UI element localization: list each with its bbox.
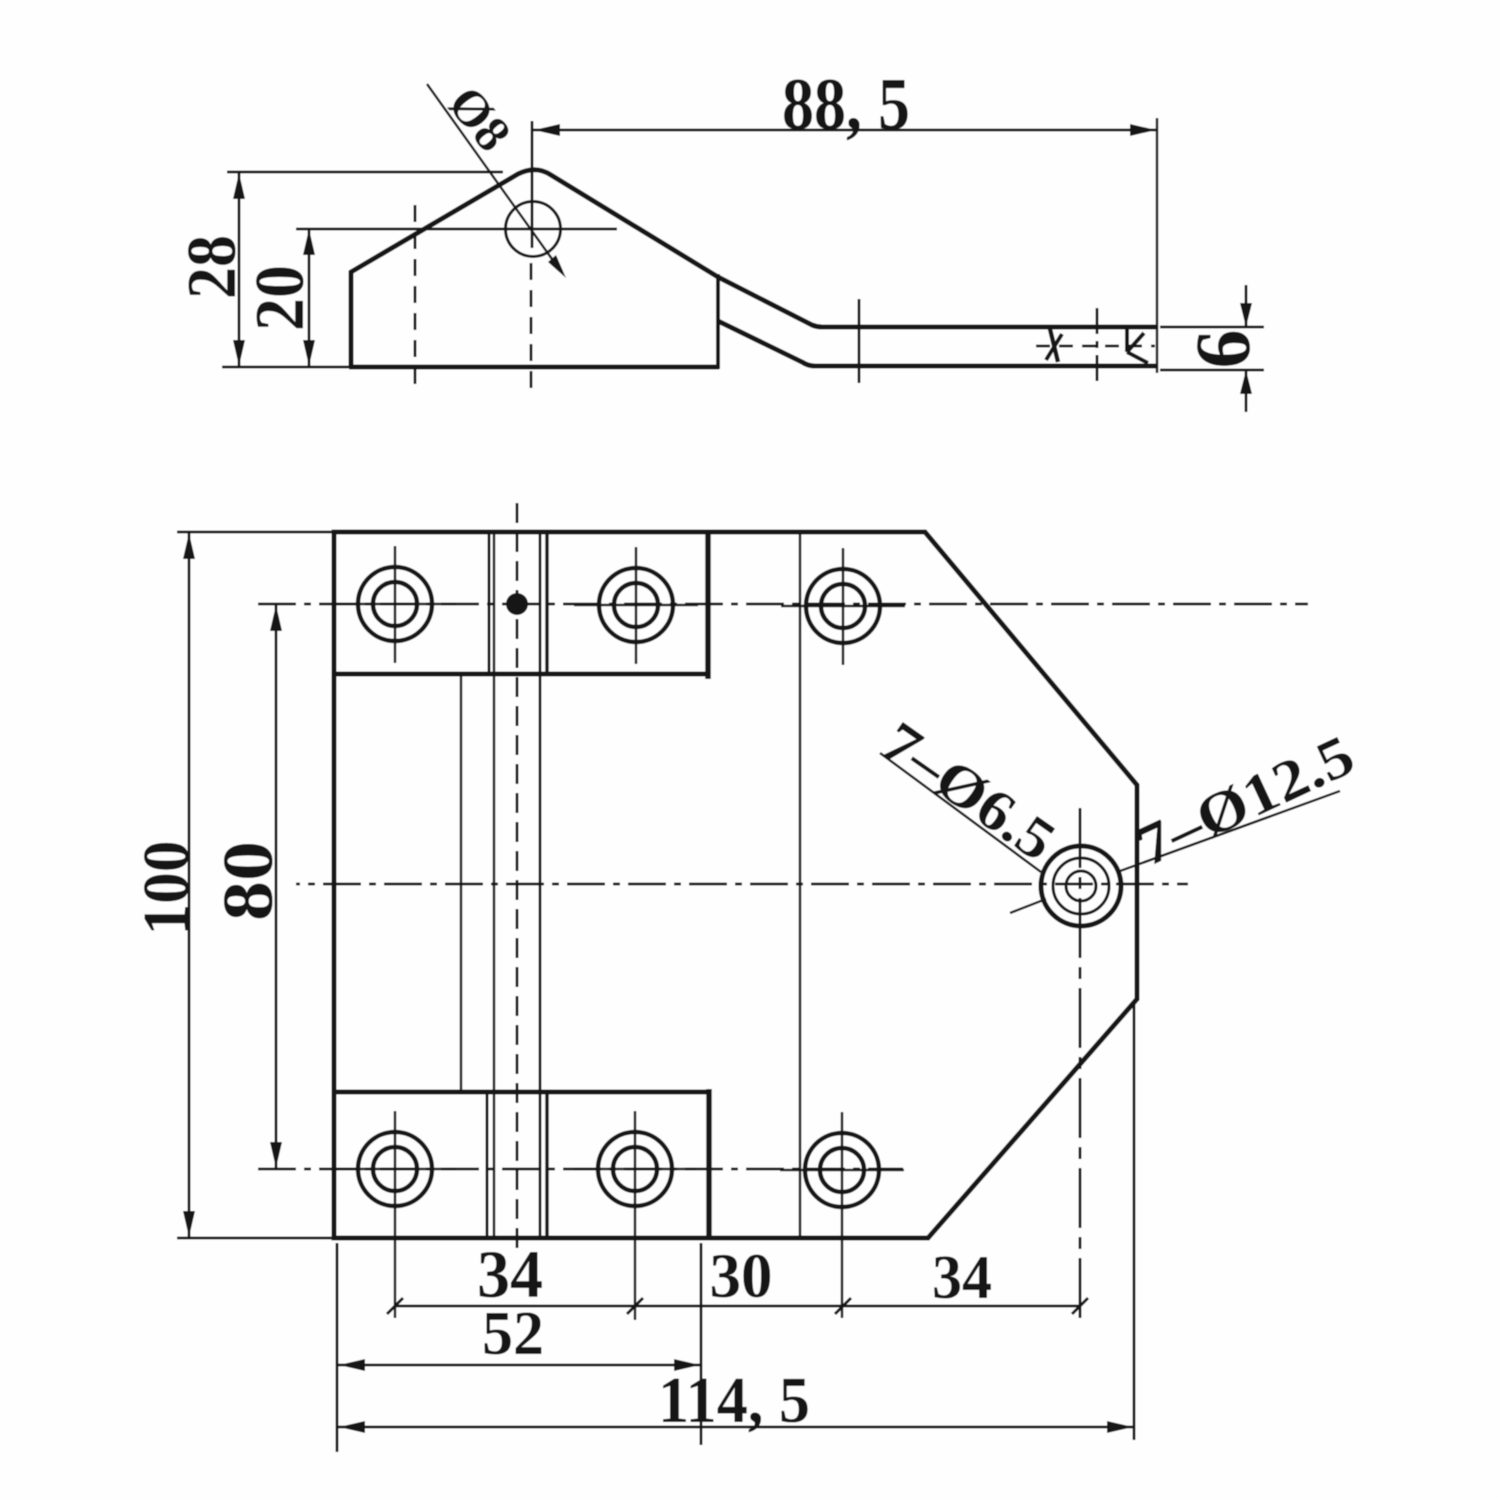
svg-text:28: 28 [174, 235, 251, 299]
svg-text:88, 5: 88, 5 [782, 64, 910, 146]
svg-text:20: 20 [242, 265, 319, 331]
svg-text:100: 100 [130, 841, 203, 936]
svg-text:6: 6 [1179, 330, 1266, 369]
svg-text:34: 34 [932, 1244, 992, 1312]
svg-text:114, 5: 114, 5 [658, 1364, 810, 1437]
svg-text:30: 30 [710, 1240, 773, 1311]
svg-text:80: 80 [208, 841, 288, 921]
svg-text:52: 52 [482, 1300, 544, 1368]
